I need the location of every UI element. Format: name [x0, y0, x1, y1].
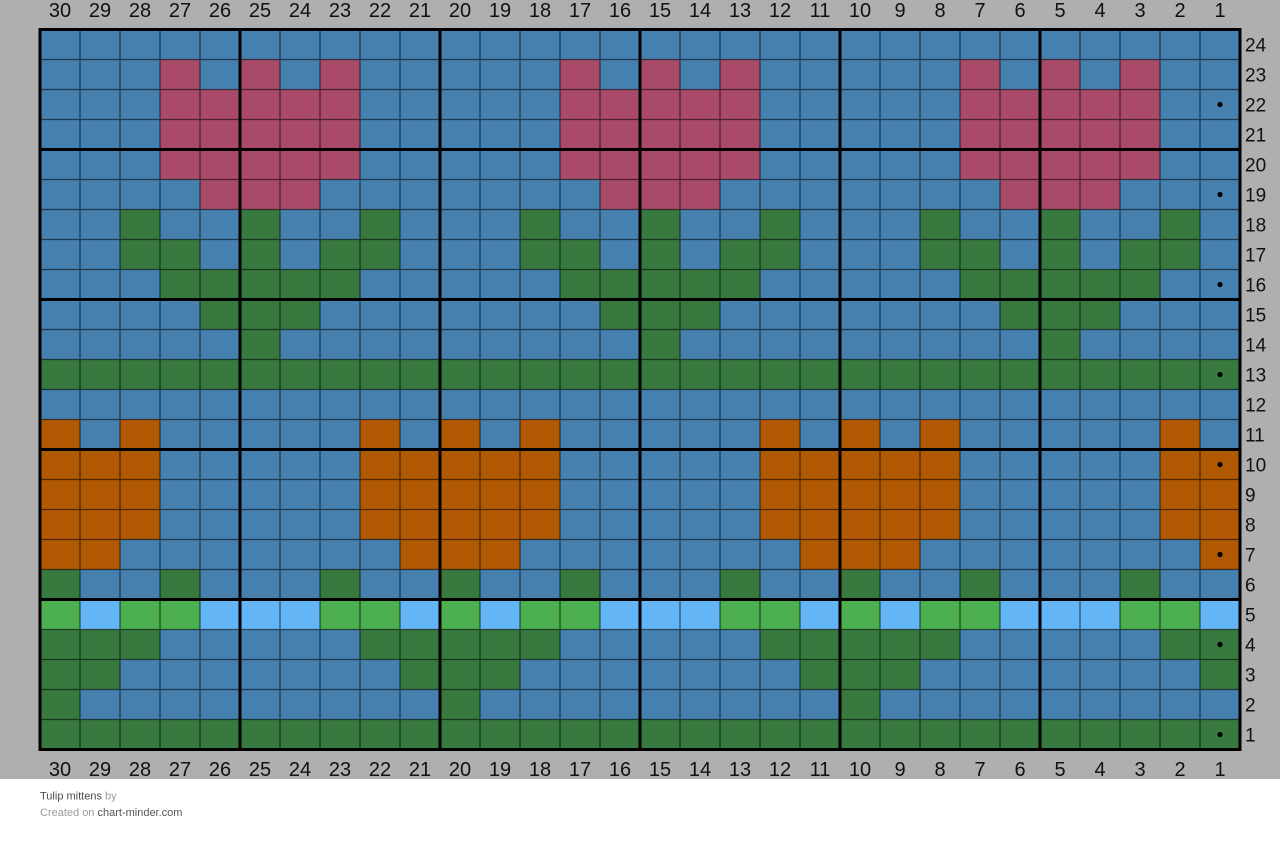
svg-text:8: 8	[934, 759, 945, 781]
svg-text:3: 3	[1134, 759, 1145, 781]
svg-text:10: 10	[849, 759, 871, 781]
svg-text:7: 7	[974, 759, 985, 781]
svg-text:3: 3	[1245, 665, 1256, 686]
svg-text:14: 14	[689, 0, 711, 22]
svg-text:7: 7	[1245, 545, 1256, 566]
svg-text:1: 1	[1214, 759, 1225, 781]
svg-text:9: 9	[894, 0, 905, 22]
svg-text:22: 22	[369, 0, 391, 22]
svg-text:9: 9	[894, 759, 905, 781]
svg-text:13: 13	[729, 759, 751, 781]
svg-text:17: 17	[569, 0, 591, 22]
svg-text:1: 1	[1214, 0, 1225, 22]
svg-text:12: 12	[769, 0, 791, 22]
svg-text:21: 21	[409, 0, 431, 22]
svg-text:10: 10	[849, 0, 871, 22]
svg-text:25: 25	[249, 0, 271, 22]
svg-text:8: 8	[934, 0, 945, 22]
svg-text:18: 18	[529, 759, 551, 781]
svg-text:26: 26	[209, 0, 231, 22]
svg-text:6: 6	[1014, 0, 1025, 22]
svg-text:24: 24	[1245, 35, 1267, 56]
svg-text:5: 5	[1245, 605, 1256, 626]
svg-text:20: 20	[449, 0, 471, 22]
svg-text:29: 29	[89, 0, 111, 22]
svg-text:22: 22	[1245, 95, 1266, 116]
svg-text:23: 23	[329, 759, 351, 781]
svg-text:28: 28	[129, 759, 151, 781]
svg-text:13: 13	[1245, 365, 1266, 386]
svg-text:3: 3	[1134, 0, 1145, 22]
svg-text:19: 19	[1245, 185, 1266, 206]
svg-text:11: 11	[810, 0, 831, 22]
svg-text:19: 19	[489, 759, 511, 781]
svg-text:22: 22	[369, 759, 391, 781]
svg-text:21: 21	[409, 759, 431, 781]
svg-text:5: 5	[1054, 759, 1065, 781]
svg-text:12: 12	[769, 759, 791, 781]
svg-text:27: 27	[169, 0, 191, 22]
svg-text:15: 15	[649, 759, 671, 781]
svg-text:15: 15	[1245, 305, 1266, 326]
svg-text:19: 19	[489, 0, 511, 22]
svg-text:1: 1	[1245, 725, 1256, 746]
svg-text:26: 26	[209, 759, 231, 781]
svg-text:2: 2	[1174, 0, 1185, 22]
svg-text:17: 17	[1245, 245, 1266, 266]
svg-text:18: 18	[529, 0, 551, 22]
svg-text:23: 23	[329, 0, 351, 22]
svg-text:20: 20	[449, 759, 471, 781]
svg-text:21: 21	[1245, 125, 1266, 146]
svg-text:14: 14	[689, 759, 711, 781]
svg-text:12: 12	[1245, 395, 1266, 416]
svg-text:Tulip mittens by: Tulip mittens by	[40, 791, 117, 803]
svg-text:23: 23	[1245, 65, 1266, 86]
svg-text:18: 18	[1245, 215, 1266, 236]
svg-text:Created on chart-minder.com: Created on chart-minder.com	[40, 807, 182, 819]
svg-text:30: 30	[49, 759, 71, 781]
svg-text:7: 7	[974, 0, 985, 22]
svg-text:16: 16	[609, 0, 631, 22]
svg-text:14: 14	[1245, 335, 1267, 356]
svg-text:25: 25	[249, 759, 271, 781]
svg-text:28: 28	[129, 0, 151, 22]
svg-text:24: 24	[289, 0, 311, 22]
svg-text:6: 6	[1245, 575, 1256, 596]
svg-text:4: 4	[1094, 759, 1105, 781]
svg-text:13: 13	[729, 0, 751, 22]
svg-text:11: 11	[1245, 425, 1265, 446]
svg-text:16: 16	[609, 759, 631, 781]
svg-text:20: 20	[1245, 155, 1266, 176]
svg-text:24: 24	[289, 759, 311, 781]
svg-text:27: 27	[169, 759, 191, 781]
svg-text:10: 10	[1245, 455, 1266, 476]
svg-text:2: 2	[1174, 759, 1185, 781]
svg-text:5: 5	[1054, 0, 1065, 22]
svg-text:6: 6	[1014, 759, 1025, 781]
svg-text:17: 17	[569, 759, 591, 781]
svg-text:15: 15	[649, 0, 671, 22]
svg-text:4: 4	[1094, 0, 1105, 22]
svg-text:8: 8	[1245, 515, 1256, 536]
svg-text:4: 4	[1245, 635, 1256, 656]
svg-text:9: 9	[1245, 485, 1256, 506]
svg-text:30: 30	[49, 0, 71, 22]
svg-text:11: 11	[810, 759, 831, 781]
svg-text:16: 16	[1245, 275, 1266, 296]
svg-text:2: 2	[1245, 695, 1256, 716]
svg-text:29: 29	[89, 759, 111, 781]
